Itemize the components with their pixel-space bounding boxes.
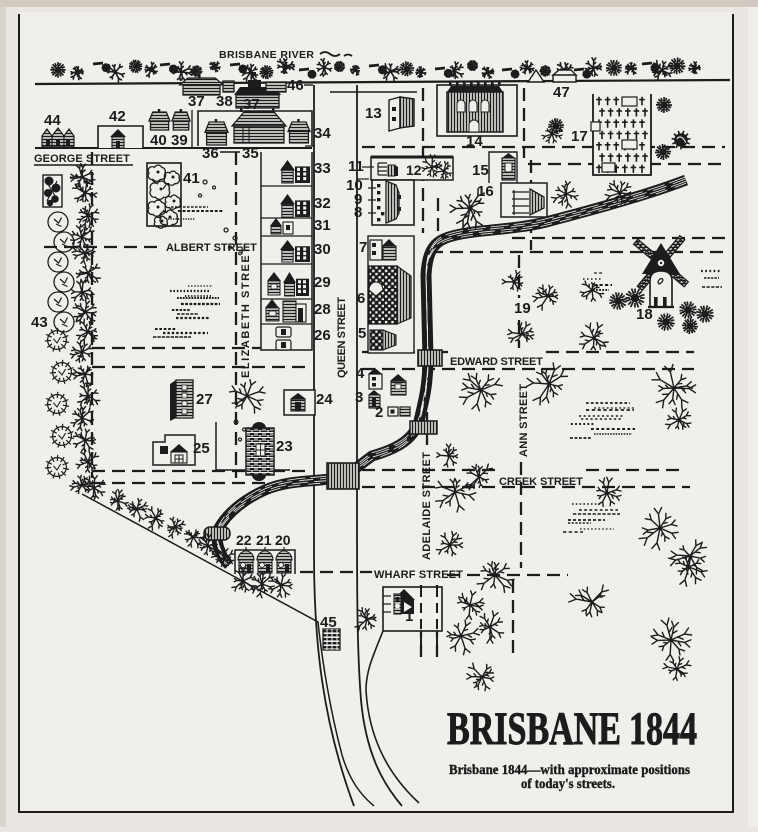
svg-text:4: 4 [356, 365, 365, 382]
svg-text:11: 11 [348, 158, 364, 175]
svg-text:GEORGE STREET: GEORGE STREET [34, 153, 131, 165]
svg-text:37: 37 [188, 93, 205, 110]
svg-text:23: 23 [276, 438, 293, 455]
svg-text:EDWARD STREET: EDWARD STREET [450, 356, 544, 368]
svg-text:14: 14 [466, 133, 483, 150]
svg-text:ADELAIDE STREET: ADELAIDE STREET [421, 451, 433, 560]
svg-text:22: 22 [236, 532, 252, 548]
svg-text:CREEK STREET: CREEK STREET [499, 476, 584, 488]
svg-text:27: 27 [196, 391, 213, 408]
svg-text:16: 16 [477, 183, 494, 200]
svg-text:40: 40 [150, 132, 167, 149]
svg-text:6: 6 [357, 290, 365, 307]
svg-text:36: 36 [202, 145, 219, 162]
svg-text:39: 39 [171, 132, 188, 149]
svg-text:8: 8 [354, 204, 362, 221]
svg-text:44: 44 [44, 112, 61, 129]
svg-text:ELIZABETH STREET: ELIZABETH STREET [240, 246, 252, 378]
svg-text:19: 19 [514, 300, 531, 317]
svg-text:24: 24 [316, 391, 333, 408]
svg-text:1: 1 [405, 608, 413, 625]
svg-text:17: 17 [571, 128, 588, 145]
svg-text:47: 47 [553, 84, 570, 101]
svg-text:13: 13 [365, 105, 382, 122]
svg-text:QUEEN STREET: QUEEN STREET [336, 296, 348, 378]
svg-text:29: 29 [314, 274, 331, 291]
svg-text:BRISBANE RIVER: BRISBANE RIVER [219, 49, 315, 61]
svg-text:1844: 1844 [629, 703, 697, 755]
svg-text:25: 25 [193, 440, 210, 457]
svg-text:41: 41 [183, 170, 200, 187]
svg-text:18: 18 [636, 306, 653, 323]
svg-text:3: 3 [355, 389, 363, 406]
svg-text:Brisbane 1844—with approximate: Brisbane 1844—with approximate positions [449, 763, 691, 778]
svg-text:BRISBANE: BRISBANE [447, 703, 621, 755]
svg-text:35: 35 [242, 145, 259, 162]
svg-text:12: 12 [406, 162, 422, 178]
svg-text:20: 20 [275, 532, 291, 548]
svg-text:33: 33 [314, 160, 331, 177]
svg-text:46: 46 [287, 77, 304, 94]
svg-text:32: 32 [314, 195, 331, 212]
svg-text:of today's streets.: of today's streets. [521, 777, 615, 792]
svg-text:2: 2 [375, 404, 383, 421]
svg-text:ANN STREET: ANN STREET [518, 383, 530, 457]
svg-text:30: 30 [314, 241, 331, 258]
svg-text:15: 15 [472, 162, 489, 179]
svg-text:21: 21 [256, 532, 272, 548]
svg-text:28: 28 [314, 301, 331, 318]
svg-text:5: 5 [358, 325, 366, 342]
svg-text:WHARF STREET: WHARF STREET [374, 569, 464, 581]
svg-text:26: 26 [314, 327, 331, 344]
svg-text:34: 34 [314, 125, 331, 142]
svg-text:31: 31 [314, 217, 331, 234]
svg-text:38: 38 [216, 93, 233, 110]
svg-text:7: 7 [359, 239, 367, 256]
svg-text:42: 42 [109, 108, 126, 125]
svg-text:43: 43 [31, 314, 48, 331]
